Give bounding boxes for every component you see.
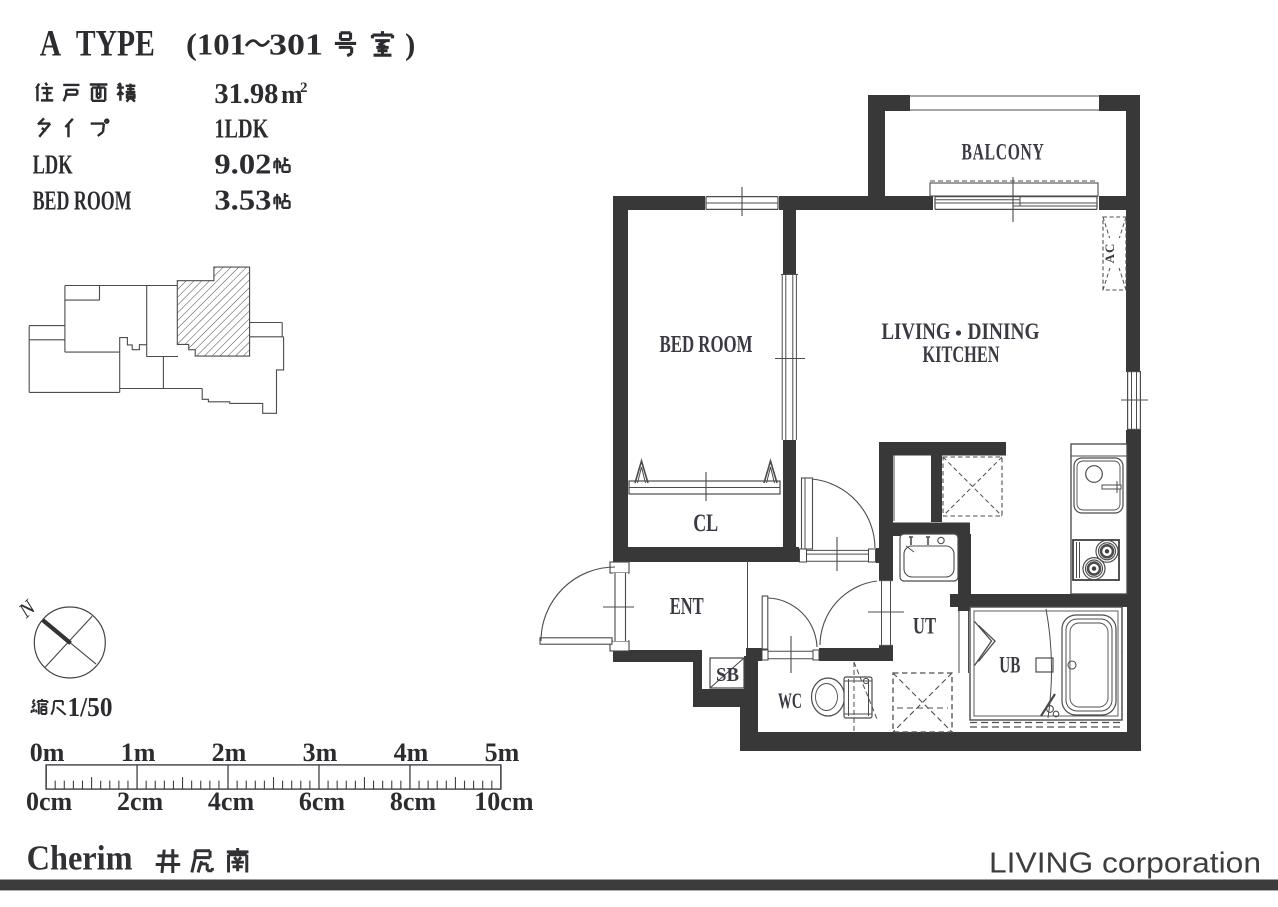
svg-text:9.02: 9.02 [214,149,271,180]
svg-text:3m: 3m [303,738,338,767]
svg-text:DINING: DINING [968,319,1040,344]
svg-text:2m: 2m [212,738,247,767]
svg-text:1/50: 1/50 [68,692,113,722]
svg-text:BED ROOM: BED ROOM [660,332,753,358]
svg-text:LDK: LDK [33,149,73,179]
svg-text:Cherim: Cherim [27,839,133,878]
svg-text:CL: CL [693,510,718,537]
svg-text:5m: 5m [485,738,520,767]
svg-text:31.98: 31.98 [214,79,278,110]
svg-text:WC: WC [778,688,802,713]
svg-text:): ) [405,27,415,62]
svg-text:(101: (101 [186,27,246,62]
svg-text:ENT: ENT [670,594,704,620]
svg-text:KITCHEN: KITCHEN [923,342,1000,367]
svg-text:301: 301 [269,27,323,62]
svg-text:8cm: 8cm [390,787,437,816]
svg-text:UT: UT [913,614,936,639]
svg-text:LIVING: LIVING [882,319,951,344]
svg-text:3.53: 3.53 [214,185,271,216]
svg-text:SB: SB [716,664,739,686]
svg-text:1LDK: 1LDK [214,113,268,143]
svg-text:2: 2 [300,80,308,96]
svg-text:10cm: 10cm [474,787,534,816]
svg-text:BALCONY: BALCONY [962,140,1045,165]
svg-text:2cm: 2cm [117,787,164,816]
svg-text:BED ROOM: BED ROOM [33,185,132,215]
svg-text:4cm: 4cm [208,787,255,816]
svg-text:AC: AC [1102,243,1117,264]
svg-text:0m: 0m [30,738,65,767]
svg-text:LIVING corporation: LIVING corporation [989,848,1261,880]
svg-text:0cm: 0cm [26,787,73,816]
svg-text:6cm: 6cm [299,787,346,816]
svg-text:UB: UB [999,653,1020,678]
svg-text:1m: 1m [121,738,156,767]
svg-text:4m: 4m [394,738,429,767]
svg-text:A TYPE: A TYPE [40,23,155,64]
